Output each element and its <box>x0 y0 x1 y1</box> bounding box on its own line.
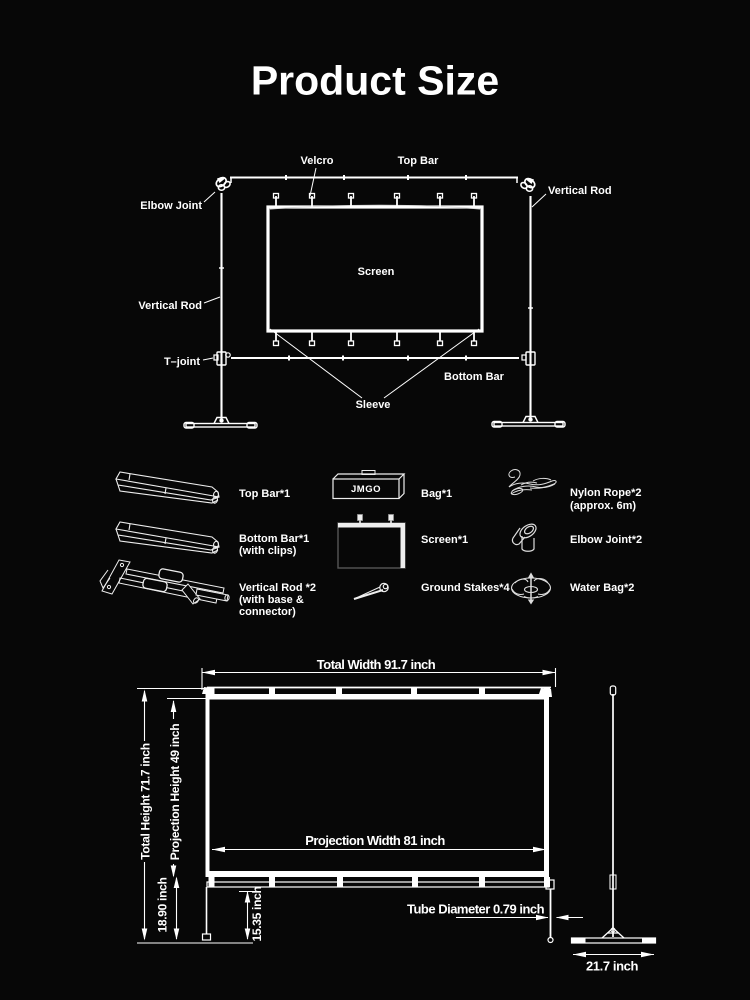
svg-text:Top Bar: Top Bar <box>398 155 439 167</box>
svg-text:Elbow Joint*2: Elbow Joint*2 <box>570 534 642 546</box>
svg-text:Screen: Screen <box>358 266 395 278</box>
svg-text:Screen*1: Screen*1 <box>421 534 468 546</box>
svg-text:18.90 inch: 18.90 inch <box>156 877 170 932</box>
svg-text:Ground Stakes*4: Ground Stakes*4 <box>421 582 511 594</box>
svg-text:(approx. 6m): (approx. 6m) <box>570 500 636 512</box>
svg-text:Sleeve: Sleeve <box>356 399 391 411</box>
svg-text:Top Bar*1: Top Bar*1 <box>239 488 290 500</box>
svg-text:connector): connector) <box>239 606 296 618</box>
svg-text:Projection Height 49 inch: Projection Height 49 inch <box>168 724 182 861</box>
svg-text:Vertical Rod: Vertical Rod <box>138 300 202 312</box>
svg-text:(with clips): (with clips) <box>239 545 297 557</box>
svg-text:Nylon Rope*2: Nylon Rope*2 <box>570 487 642 499</box>
svg-text:Bottom Bar*1: Bottom Bar*1 <box>239 533 309 545</box>
svg-text:Bag*1: Bag*1 <box>421 488 452 500</box>
svg-text:T–joint: T–joint <box>164 356 200 368</box>
svg-text:JMGO: JMGO <box>351 484 381 495</box>
svg-text:Product Size: Product Size <box>251 58 499 104</box>
svg-text:21.7 inch: 21.7 inch <box>586 959 638 974</box>
svg-text:Elbow Joint: Elbow Joint <box>140 200 202 212</box>
svg-text:Water Bag*2: Water Bag*2 <box>570 582 634 594</box>
svg-text:Total Height 71.7 inch: Total Height 71.7 inch <box>139 743 153 860</box>
svg-text:Total Width 91.7 inch: Total Width 91.7 inch <box>317 657 436 672</box>
svg-text:Vertical Rod *2: Vertical Rod *2 <box>239 582 316 594</box>
svg-text:Velcro: Velcro <box>300 155 333 167</box>
svg-text:(with base &: (with base & <box>239 594 304 606</box>
svg-text:Bottom Bar: Bottom Bar <box>444 371 505 383</box>
svg-text:Projection Width 81 inch: Projection Width 81 inch <box>305 833 445 848</box>
svg-text:15.35 inch: 15.35 inch <box>250 886 264 941</box>
svg-text:Vertical Rod: Vertical Rod <box>548 185 612 197</box>
svg-text:Tube Diameter 0.79 inch: Tube Diameter 0.79 inch <box>407 902 545 917</box>
